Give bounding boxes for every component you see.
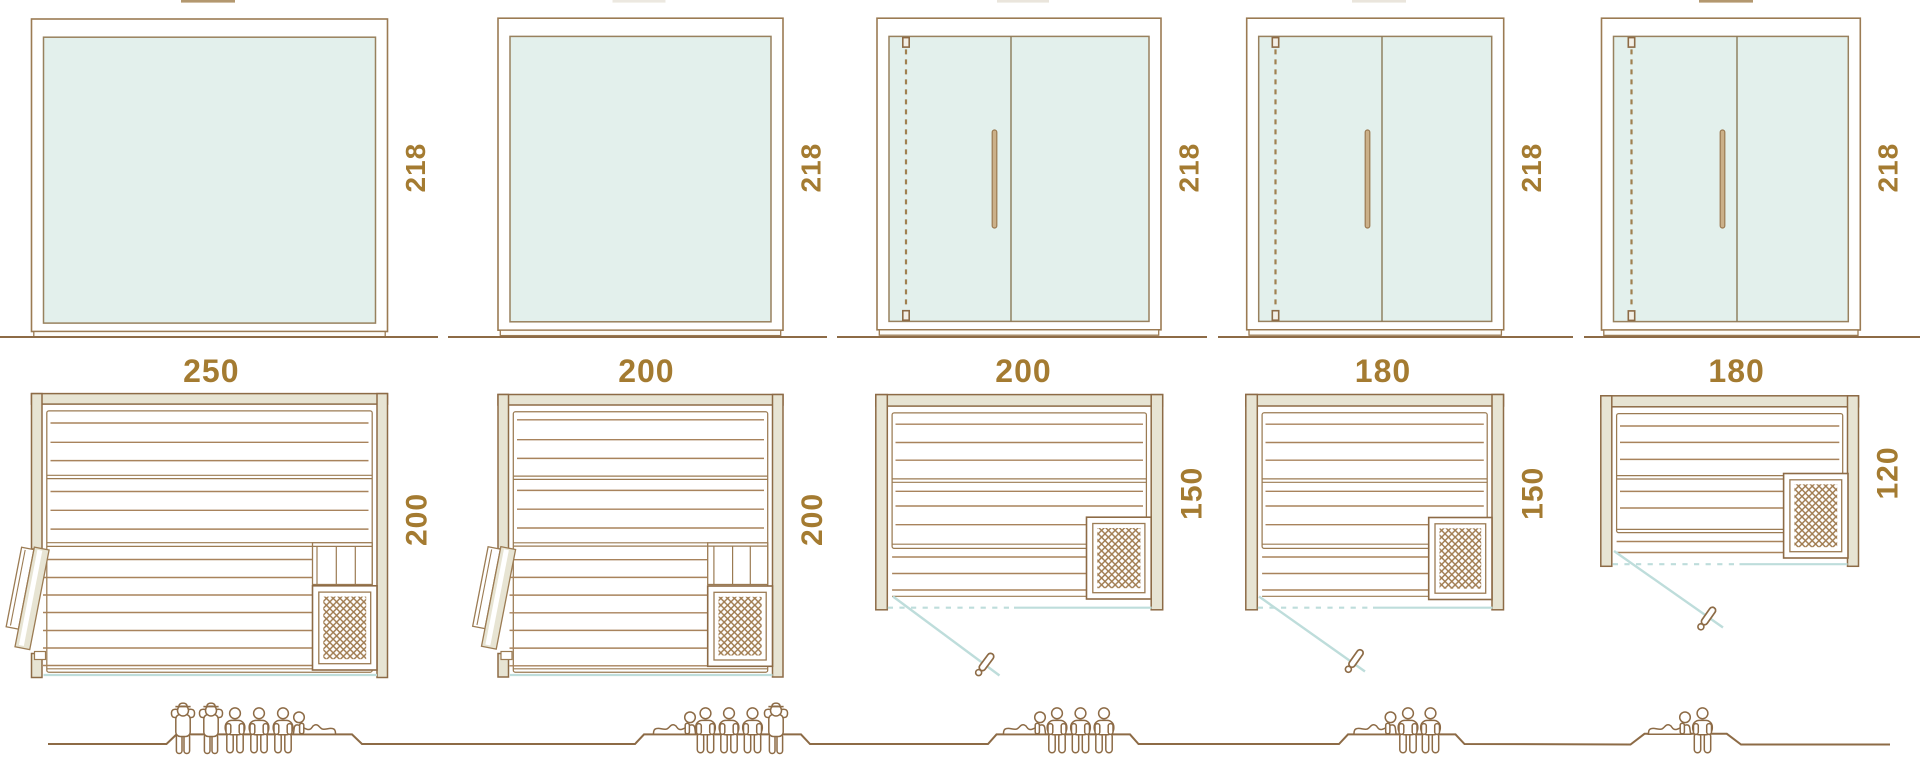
svg-text:218: 218 (1516, 143, 1547, 193)
svg-text:200: 200 (618, 353, 674, 389)
svg-text:180: 180 (1355, 353, 1411, 389)
svg-text:150: 150 (1176, 467, 1209, 520)
svg-text:180: 180 (1708, 353, 1764, 389)
svg-text:200: 200 (995, 353, 1051, 389)
svg-text:218: 218 (795, 143, 826, 193)
svg-text:200: 200 (401, 493, 434, 546)
svg-text:200: 200 (796, 493, 829, 546)
svg-text:120: 120 (1872, 446, 1905, 499)
svg-text:218: 218 (1173, 143, 1204, 193)
svg-text:150: 150 (1517, 467, 1550, 520)
svg-text:218: 218 (400, 143, 431, 193)
svg-text:218: 218 (1873, 143, 1904, 193)
svg-text:250: 250 (183, 353, 239, 389)
